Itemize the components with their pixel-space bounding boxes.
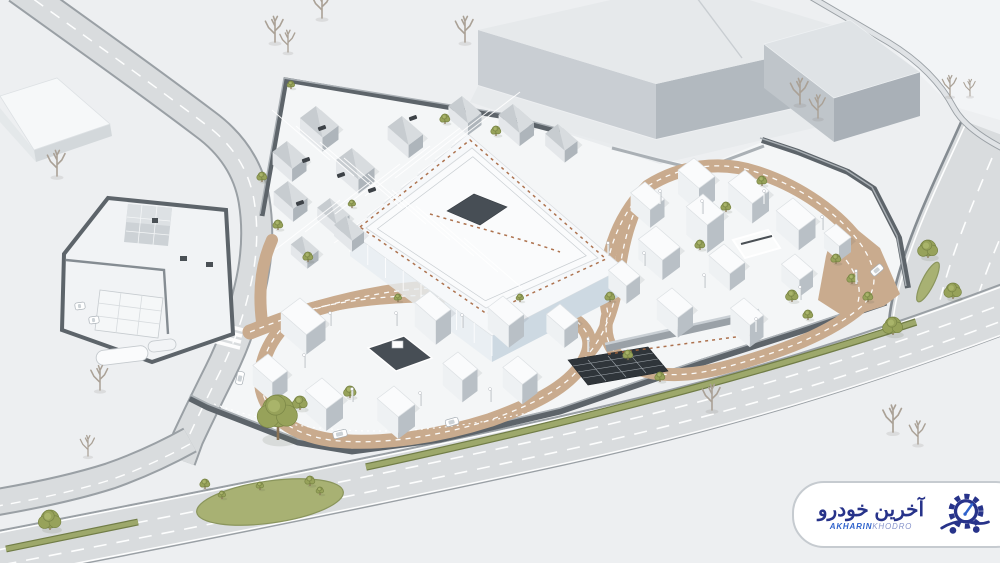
- tree-shadow: [789, 300, 800, 304]
- logo-title-latin: AKHARINKHODRO: [810, 522, 932, 531]
- tree-canopy: [318, 488, 320, 490]
- pole-lamp: [303, 354, 306, 357]
- pole-lamp: [643, 252, 646, 255]
- tree-shadow: [308, 484, 317, 487]
- tree-canopy: [289, 82, 291, 84]
- tree-canopy: [518, 295, 520, 297]
- tree-shadow: [306, 260, 315, 263]
- solar-canopy: [124, 204, 172, 246]
- tree-canopy: [833, 255, 836, 258]
- car: [75, 302, 86, 310]
- pole-lamp: [703, 274, 706, 277]
- tree-shadow: [276, 228, 285, 231]
- tree-canopy: [607, 293, 610, 296]
- pole-lamp: [587, 338, 590, 341]
- tree-shadow: [260, 180, 269, 183]
- tree-canopy: [697, 241, 700, 244]
- pole-lamp: [395, 312, 398, 315]
- tree-canopy: [442, 115, 445, 118]
- tree-shadow: [806, 318, 815, 321]
- pole-lamp: [701, 200, 704, 203]
- pole-lamp: [755, 318, 758, 321]
- tree-canopy: [268, 400, 280, 412]
- tree-canopy: [657, 373, 660, 376]
- tree-shadow: [443, 122, 452, 125]
- tree-shadow: [203, 487, 212, 490]
- site-plan-render: آخرین خودرو AKHARINKHODRO: [0, 0, 1000, 563]
- tree-shadow: [262, 434, 297, 447]
- pole-lamp: [855, 270, 858, 273]
- tree-canopy: [202, 480, 205, 483]
- pole-lamp: [607, 242, 610, 245]
- tree-canopy: [275, 221, 278, 224]
- tree-canopy: [296, 398, 301, 403]
- utility-compound: [62, 198, 233, 366]
- pole-lamp: [799, 286, 802, 289]
- tree-canopy: [493, 127, 496, 130]
- pole-lamp: [763, 190, 766, 193]
- tree-canopy: [44, 513, 51, 520]
- pole-lamp: [329, 312, 332, 315]
- tree-canopy: [220, 492, 222, 494]
- tree-canopy: [949, 285, 954, 290]
- tree-canopy: [805, 311, 808, 314]
- tree-canopy: [259, 173, 262, 176]
- pole-lamp: [821, 216, 824, 219]
- logo-wordmark: آخرین خودرو AKHARINKHODRO: [810, 499, 932, 531]
- car-roof: [92, 318, 96, 322]
- tree-shadow: [866, 300, 875, 303]
- tree-canopy: [888, 320, 894, 326]
- pole-lamp: [461, 314, 464, 317]
- tree-shadow: [494, 134, 503, 137]
- car: [89, 316, 100, 324]
- tree-canopy: [625, 351, 628, 354]
- tree-shadow: [834, 262, 843, 265]
- tree-canopy: [865, 293, 868, 296]
- tree-shadow: [760, 184, 769, 187]
- tree-canopy: [789, 292, 793, 296]
- tree-canopy: [849, 275, 852, 278]
- gear-speedometer-car-icon: [938, 487, 994, 543]
- tree-shadow: [698, 248, 707, 251]
- tree-canopy: [723, 203, 726, 206]
- tree-canopy: [258, 483, 260, 485]
- tree-canopy: [347, 388, 351, 392]
- white-canopy: [95, 290, 163, 338]
- pole-lamp: [419, 392, 422, 395]
- tree-canopy: [759, 177, 762, 180]
- tree-canopy: [307, 477, 310, 480]
- tree-canopy: [350, 201, 352, 203]
- watermark-badge: آخرین خودرو AKHARINKHODRO: [792, 481, 1000, 548]
- logo-title-persian: آخرین خودرو: [810, 499, 932, 521]
- tree-shadow: [658, 380, 667, 383]
- scene-canvas: [0, 0, 1000, 563]
- pole-lamp: [659, 190, 662, 193]
- pole-lamp: [351, 388, 354, 391]
- car-roof: [78, 304, 82, 308]
- tree-shadow: [608, 300, 617, 303]
- tree-shadow: [724, 210, 733, 213]
- pole-lamp: [489, 388, 492, 391]
- tree-canopy: [396, 295, 398, 297]
- tree-shadow: [626, 358, 635, 361]
- tree-canopy: [923, 243, 929, 249]
- tree-canopy: [305, 253, 308, 256]
